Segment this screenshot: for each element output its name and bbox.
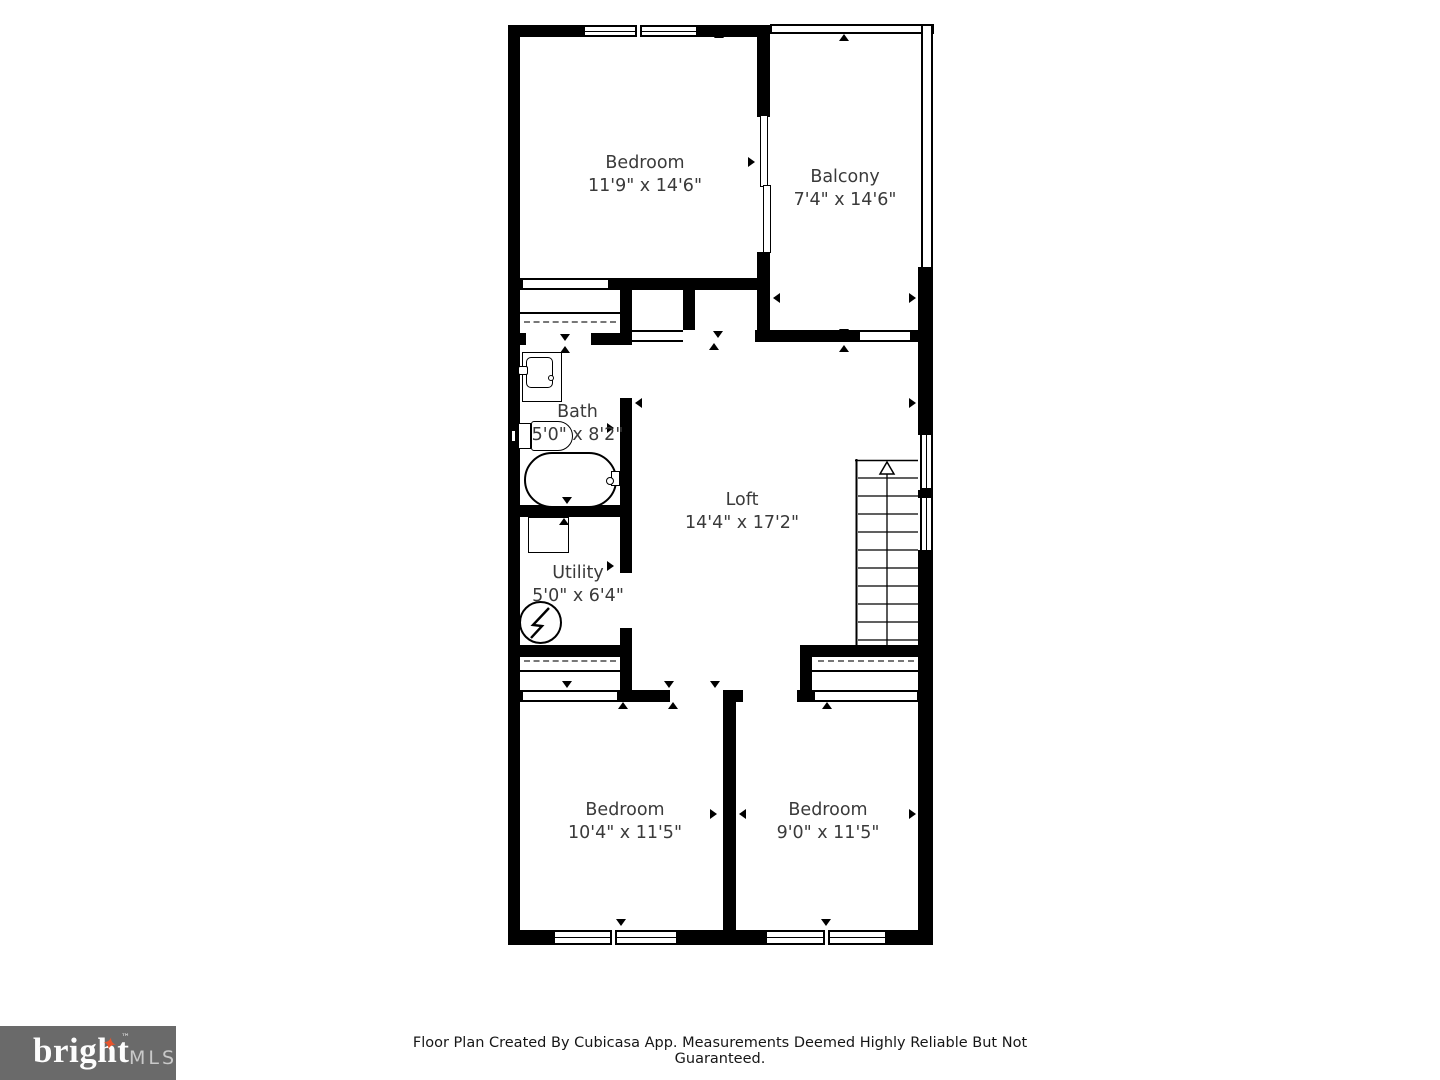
closet-opening — [523, 278, 608, 290]
wall — [797, 690, 815, 702]
window — [765, 930, 887, 945]
closet-shelf-line — [812, 670, 918, 672]
dimension-marker — [559, 518, 569, 525]
window-glass-line — [926, 498, 927, 550]
sink-icon — [526, 357, 553, 388]
opening-marker — [664, 681, 674, 688]
room-name: Bath — [505, 401, 650, 424]
room-name: Bedroom — [545, 152, 745, 175]
room-name: Bedroom — [728, 799, 928, 822]
dimension-marker — [616, 919, 626, 926]
dimension-marker — [710, 681, 720, 688]
wall — [508, 645, 632, 657]
staircase-up — [855, 459, 918, 647]
window — [920, 433, 933, 490]
balcony-railing-right — [921, 24, 933, 269]
wall — [757, 252, 770, 342]
dimension-marker — [562, 681, 572, 688]
faucet-icon — [518, 366, 528, 375]
closet-shelf-line — [520, 670, 620, 672]
dimension-marker — [714, 31, 724, 38]
closet-opening — [523, 690, 617, 702]
room-dims: 5'0" x 8'2" — [505, 424, 650, 447]
room-label-utility: Utility 5'0" x 6'4" — [498, 562, 658, 608]
wall — [918, 342, 933, 435]
window-glass-line — [926, 435, 927, 488]
room-name: Bedroom — [525, 799, 725, 822]
wall — [620, 628, 632, 690]
opening-marker — [560, 334, 570, 341]
disclaimer-text: Floor Plan Created By Cubicasa App. Meas… — [400, 1035, 1040, 1067]
room-label-bedroom-right: Bedroom 9'0" x 11'5" — [728, 799, 928, 845]
opening-marker — [709, 343, 719, 350]
wall — [508, 278, 523, 290]
window-mullion — [635, 25, 642, 37]
wall — [723, 690, 743, 702]
window-mullion — [610, 930, 617, 945]
wall — [918, 550, 933, 945]
room-name: Loft — [642, 489, 842, 512]
balcony-railing-top — [770, 24, 934, 34]
stairs-up-arrow-icon — [880, 462, 894, 474]
room-dims: 10'4" x 11'5" — [525, 822, 725, 845]
window — [858, 330, 912, 342]
dimension-marker — [839, 34, 849, 41]
closet-rail-dashed — [524, 321, 616, 323]
room-dims: 9'0" x 11'5" — [728, 822, 928, 845]
window — [553, 930, 678, 945]
dimension-marker — [748, 157, 755, 167]
bright-mls-logo: bright ✦ ™ MLS — [0, 1026, 176, 1080]
dimension-marker — [909, 293, 916, 303]
dimension-marker — [773, 293, 780, 303]
room-label-balcony: Balcony 7'4" x 14'6" — [760, 166, 930, 212]
room-name: Utility — [498, 562, 658, 585]
room-label-bedroom-left: Bedroom 10'4" x 11'5" — [525, 799, 725, 845]
closet-rail-dashed — [524, 660, 616, 662]
wall — [683, 290, 695, 330]
room-dims: 11'9" x 14'6" — [545, 175, 745, 198]
logo-suffix-text: MLS — [129, 1047, 177, 1069]
wall — [912, 330, 933, 342]
room-label-loft: Loft 14'4" x 17'2" — [642, 489, 842, 535]
room-dims: 7'4" x 14'6" — [760, 189, 930, 212]
room-name: Balcony — [760, 166, 930, 189]
wall — [608, 278, 770, 290]
room-label-bath: Bath 5'0" x 8'2" — [505, 401, 650, 447]
dimension-marker — [821, 919, 831, 926]
dimension-marker — [618, 702, 628, 709]
window — [920, 496, 933, 552]
trademark-symbol: ™ — [121, 1033, 130, 1043]
window — [583, 25, 698, 37]
closet-rail-dashed — [818, 660, 914, 662]
wall — [508, 690, 523, 702]
wall — [508, 333, 526, 345]
opening-marker — [839, 329, 849, 336]
wall — [678, 930, 765, 945]
wall — [591, 333, 632, 345]
closet-opening — [815, 690, 917, 702]
wall — [508, 25, 583, 37]
opening-marker — [839, 345, 849, 352]
wall — [508, 930, 553, 945]
room-dims: 14'4" x 17'2" — [642, 512, 842, 535]
dimension-marker — [562, 497, 572, 504]
window-mullion — [823, 930, 830, 945]
dimension-marker — [512, 157, 519, 167]
dimension-marker — [822, 702, 832, 709]
wall — [757, 25, 770, 117]
closet-shelf-line — [520, 312, 620, 314]
room-dims: 5'0" x 6'4" — [498, 585, 658, 608]
tub-knob-icon — [606, 477, 614, 485]
floor-plan-page: Bedroom 11'9" x 14'6" Balcony 7'4" x 14'… — [0, 0, 1440, 1080]
opening-marker — [560, 346, 570, 353]
dimension-marker — [909, 398, 916, 408]
wall — [617, 690, 670, 702]
opening-marker — [668, 702, 678, 709]
sink-drain-icon — [548, 375, 554, 381]
room-label-bedroom-top: Bedroom 11'9" x 14'6" — [545, 152, 745, 198]
closet-opening — [632, 330, 683, 342]
opening-marker — [713, 331, 723, 338]
dimension-marker — [512, 809, 519, 819]
